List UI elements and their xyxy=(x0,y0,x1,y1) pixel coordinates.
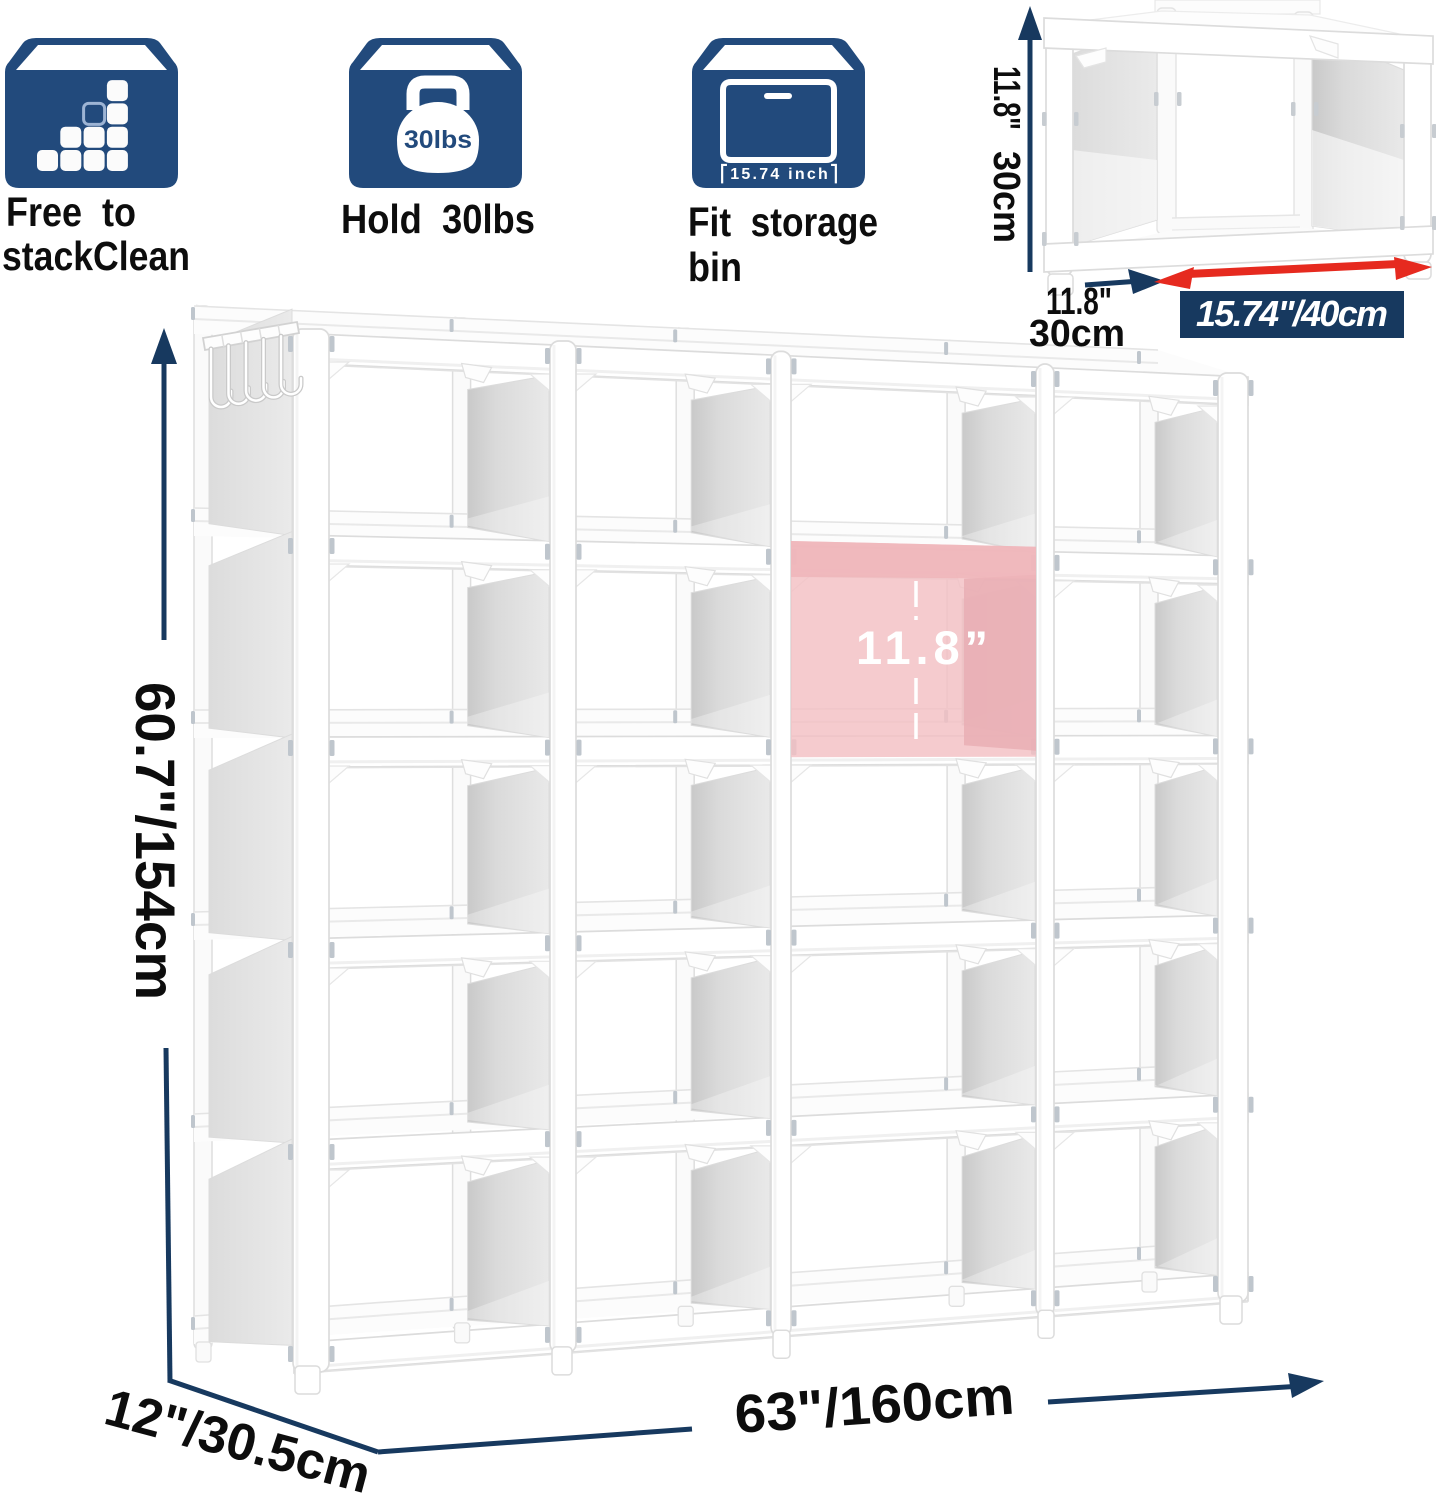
svg-text:30cm: 30cm xyxy=(985,151,1027,243)
svg-text:Free to: Free to xyxy=(6,189,136,235)
svg-text:60.7"/154cm: 60.7"/154cm xyxy=(124,682,187,1000)
svg-text:bin: bin xyxy=(688,244,742,290)
svg-text:⎡15.74 inch⎤: ⎡15.74 inch⎤ xyxy=(720,163,838,184)
svg-text:15.74"/40cm: 15.74"/40cm xyxy=(1196,293,1388,334)
svg-text:stackClean: stackClean xyxy=(2,233,190,279)
svg-text:Fit storage: Fit storage xyxy=(688,199,878,245)
svg-text:11.8”: 11.8” xyxy=(856,621,988,674)
svg-text:30cm: 30cm xyxy=(1029,313,1125,355)
svg-text:11.8": 11.8" xyxy=(985,66,1027,130)
svg-text:Hold 30lbs: Hold 30lbs xyxy=(341,196,535,242)
svg-text:30lbs: 30lbs xyxy=(404,126,472,154)
